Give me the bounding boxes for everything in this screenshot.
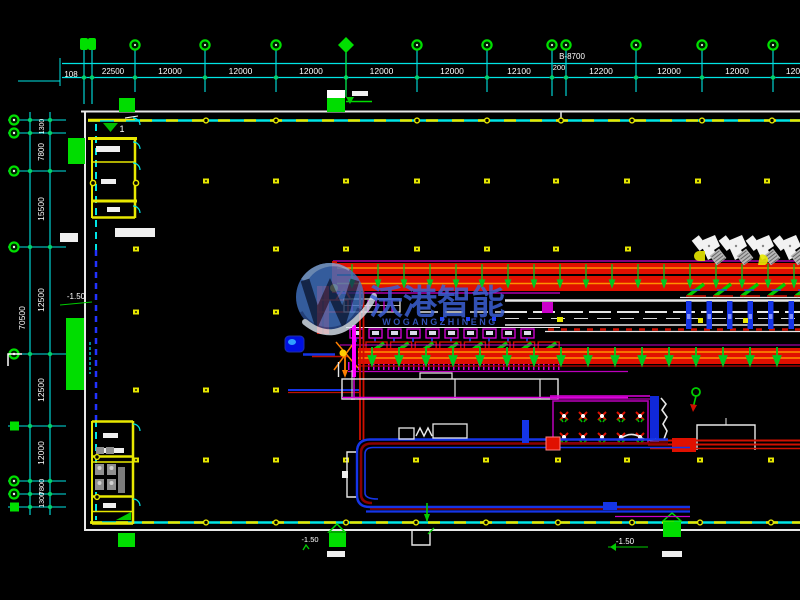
svg-text:12000: 12000 — [229, 66, 253, 76]
svg-text:22500: 22500 — [102, 67, 125, 76]
svg-text:-1.50: -1.50 — [301, 535, 318, 544]
svg-text:12000: 12000 — [158, 66, 182, 76]
svg-text:12000: 12000 — [657, 66, 681, 76]
svg-text:-1.50: -1.50 — [616, 537, 635, 546]
svg-text:-1.50: -1.50 — [67, 292, 86, 301]
svg-text:12000: 12000 — [725, 66, 749, 76]
svg-text:12000: 12000 — [440, 66, 464, 76]
svg-text:WOGANGZHINENG: WOGANGZHINENG — [382, 317, 498, 327]
svg-text:12000: 12000 — [370, 66, 394, 76]
svg-text:12500: 12500 — [36, 378, 46, 402]
svg-text:1: 1 — [119, 124, 124, 134]
svg-text:15500: 15500 — [36, 197, 46, 221]
svg-text:7800: 7800 — [37, 143, 46, 161]
svg-text:120: 120 — [786, 66, 800, 76]
svg-text:70500: 70500 — [17, 306, 27, 330]
svg-text:1300: 1300 — [39, 492, 46, 508]
svg-text:12500: 12500 — [36, 288, 46, 312]
svg-text:12200: 12200 — [589, 66, 613, 76]
svg-text:B-8700: B-8700 — [559, 52, 585, 61]
svg-text:200: 200 — [553, 63, 566, 72]
svg-text:12100: 12100 — [507, 66, 531, 76]
svg-text:12000: 12000 — [36, 441, 46, 465]
svg-text:108: 108 — [64, 70, 78, 79]
svg-text:1300: 1300 — [39, 119, 46, 135]
svg-text:12000: 12000 — [299, 66, 323, 76]
